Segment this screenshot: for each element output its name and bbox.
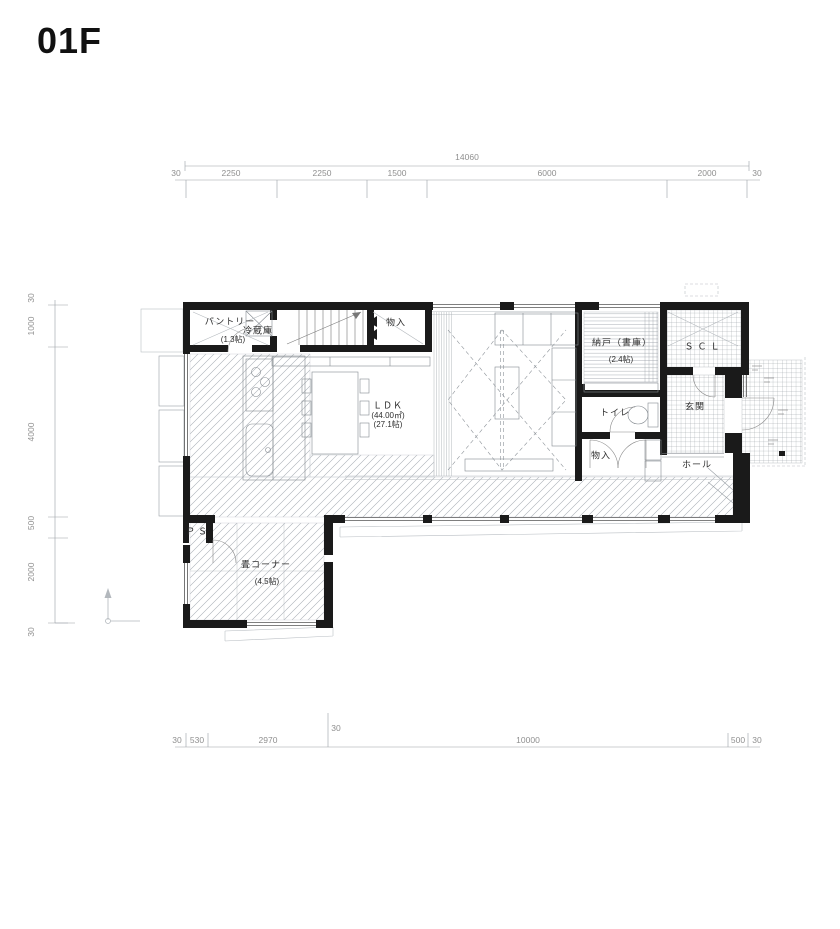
room-label-closet-top: 物入 [386,319,406,328]
room-label-storage: 納戸（書庫） [592,339,652,348]
dim-bottom-0: 30 [172,736,181,745]
dim-bottom-2: 2970 [259,736,278,745]
dim-left-0: 30 [27,293,36,302]
room-label-hall: ホール [682,461,712,470]
dimension-lines [48,161,760,747]
room-label-pantry-size: (1.3帖) [221,336,245,344]
room-label-scl: ＳＣＬ [684,343,723,352]
dim-left-4: 2000 [27,563,36,582]
room-label-entrance: 玄関 [685,403,705,412]
room-label-ldk-area: (44.00㎡) [371,412,404,420]
room-label-closet-lower: 物入 [591,452,611,461]
staircase [287,310,363,345]
room-label-ldk: ＬＤＫ [373,402,403,411]
room-label-tatami-size: (4.5帖) [255,578,279,586]
room-label-storage-size: (2.4帖) [609,356,633,364]
dim-left-3: 500 [27,516,36,530]
room-label-ps: ＰＳ [186,528,210,537]
dim-bottom-3: 10000 [516,736,540,745]
slat-screen [434,312,452,476]
ceiling-dashed-lines [448,330,566,470]
dim-left-5: 30 [27,627,36,636]
dim-top-0: 30 [171,169,180,178]
dim-top-2: 2250 [313,169,332,178]
origin-marker-icon [105,588,141,624]
room-label-tatami: 畳コーナー [241,561,291,570]
dim-top-3: 1500 [388,169,407,178]
dim-top-6: 30 [752,169,761,178]
dim-top-4: 6000 [538,169,557,178]
dim-left-1: 1000 [27,317,36,336]
dim-bottom-inner: 30 [331,724,340,733]
dim-top-1: 2250 [222,169,241,178]
room-label-pantry-fridge: 冷蔵庫 [243,327,273,336]
dim-top-total: 14060 [455,153,479,162]
dim-bottom-4: 500 [731,736,745,745]
floor-plan-drawing [0,0,840,929]
room-label-ldk-size: (27.1帖) [374,421,403,429]
dim-bottom-1: 530 [190,736,204,745]
room-label-toilet: トイレ [600,409,630,418]
dim-bottom-5: 30 [752,736,761,745]
dim-top-5: 2000 [698,169,717,178]
dim-left-2: 4000 [27,423,36,442]
floor-plan-page: 01F [0,0,840,929]
